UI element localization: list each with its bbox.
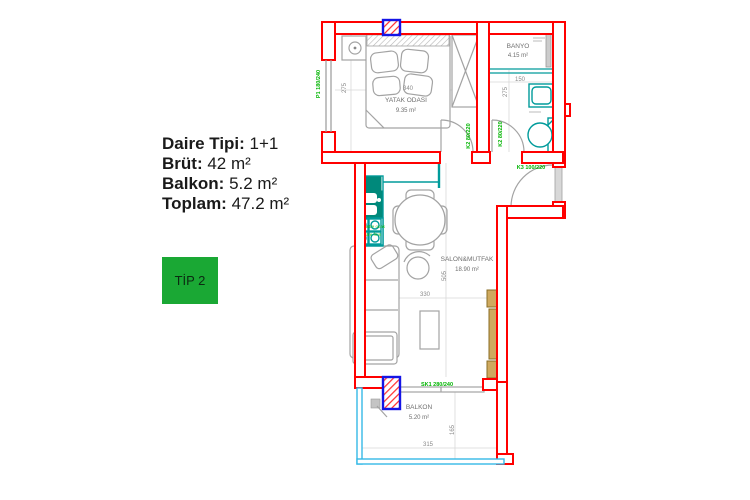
entry-door-label: K3 100/220 [517, 165, 545, 171]
bedroom-area: 9.35 m² [396, 108, 416, 114]
bathroom-door-label: K2 80/220 [498, 121, 504, 146]
bedroom-door-label: K2 80/220 [466, 123, 472, 148]
bathroom-area: 4.15 m² [508, 53, 528, 59]
washbasin [528, 118, 555, 152]
window-label: P1 180/240 [316, 70, 322, 98]
bedroom-name: YATAK ODASI [385, 97, 427, 104]
salon-name: SALON&MUTFAK [441, 256, 494, 263]
wall-salon-bottom-left [355, 377, 383, 388]
washing-machine [529, 84, 555, 107]
dim-bathroom-width: 150 [515, 77, 526, 83]
sliding-door-label: SK1 280/240 [421, 382, 453, 388]
wall-bedroom-bottom-a [322, 152, 440, 163]
column-top [383, 20, 400, 35]
wall-bedroom-bath-divider [477, 22, 489, 153]
wall-bedroom-bottom-b [472, 152, 490, 163]
column-balcony-door [383, 377, 400, 409]
armchair [404, 252, 430, 279]
balcony-name: BALKON [406, 404, 433, 411]
dim-bedroom-height: 275 [342, 82, 348, 93]
wall-left-upper [322, 22, 335, 60]
bathroom-name: BANYO [507, 43, 530, 50]
dim-salon-height: 505 [442, 270, 448, 281]
dim-balcony-width: 315 [423, 442, 434, 448]
wall-salon-right [497, 206, 507, 382]
bathroom-door [492, 120, 524, 152]
wall-bedroom-bottom-c [522, 152, 563, 163]
balcony-area: 5.20 m² [409, 415, 429, 421]
window-p1 [326, 60, 331, 132]
wall-bath-right [553, 22, 565, 167]
bed-headboard [367, 35, 449, 46]
dim-salon-width: 330 [420, 292, 431, 298]
wall-salon-bottom-right [483, 379, 497, 390]
floorplan-page: Daire Tipi: 1+1 Brüt: 42 m² Balkon: 5.2 … [0, 0, 750, 500]
dining-table [395, 195, 445, 245]
nightstand-knob [354, 47, 357, 50]
entry-door [511, 165, 562, 207]
dim-bathroom-height: 275 [503, 86, 509, 97]
wall-balcony-right [497, 382, 507, 464]
wall-salon-left [355, 163, 365, 377]
wall-top [322, 22, 563, 34]
shower-glass [546, 34, 551, 67]
floorplan-drawing: ankastre ocak ankastre fırın [0, 0, 750, 500]
faucet-icon [377, 198, 381, 202]
entry-door-frame [555, 167, 562, 203]
coffee-table [420, 311, 439, 349]
salon-area: 18.90 m² [455, 267, 479, 273]
dim-balcony-height: 165 [450, 424, 456, 435]
dim-bedroom-width: 340 [403, 86, 414, 92]
